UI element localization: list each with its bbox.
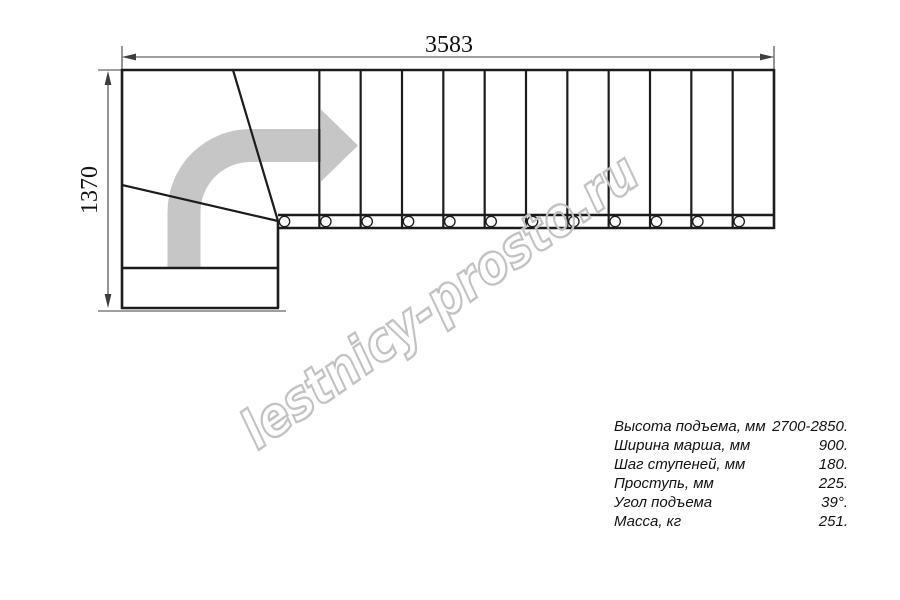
spec-value: 39°. — [821, 493, 848, 512]
spec-label: Шаг ступеней, мм — [614, 455, 745, 474]
left-dim-arrow-top — [105, 71, 112, 85]
direction-arrow-shaft — [184, 146, 322, 269]
spec-row-mass: Масса, кг 251. — [614, 512, 848, 531]
left-dimension-label: 1370 — [77, 166, 103, 214]
specs-table: Высота подъема, мм 2700-2850. Ширина мар… — [614, 417, 848, 531]
spec-value: 180. — [819, 455, 848, 474]
spec-value: 251. — [819, 512, 848, 531]
spec-label: Масса, кг — [614, 512, 681, 531]
tread-mount-circle — [734, 216, 744, 226]
left-dim-arrow-bottom — [105, 294, 112, 308]
tread-mount-circle — [362, 216, 372, 226]
spec-row-step-rise: Шаг ступеней, мм 180. — [614, 455, 848, 474]
tread-mount-circle — [445, 216, 455, 226]
top-dim-arrow-right — [760, 54, 774, 61]
tread-mount-circle — [693, 216, 703, 226]
top-dimension: 3583 — [122, 32, 774, 69]
tread-mount-circle — [651, 216, 661, 226]
spec-row-flight-width: Ширина марша, мм 900. — [614, 436, 848, 455]
direction-arrow-icon — [184, 110, 358, 269]
spec-row-angle: Угол подъема 39°. — [614, 493, 848, 512]
spec-row-height: Высота подъема, мм 2700-2850. — [614, 417, 848, 436]
spec-label: Высота подъема, мм — [614, 417, 766, 436]
spec-label: Угол подъема — [614, 493, 712, 512]
spec-label: Проступь, мм — [614, 474, 714, 493]
spec-value: 2700-2850. — [772, 417, 848, 436]
tread-mount-circle — [403, 216, 413, 226]
top-dim-arrow-left — [122, 54, 136, 61]
tread-mount-circle — [321, 216, 331, 226]
spec-label: Ширина марша, мм — [614, 436, 750, 455]
top-dimension-label: 3583 — [425, 32, 473, 58]
spec-value: 900. — [819, 436, 848, 455]
direction-arrow-head — [321, 110, 358, 182]
watermark-text: lestnicy-prosto.ru — [229, 140, 650, 461]
spec-row-tread: Проступь, мм 225. — [614, 474, 848, 493]
drawing-canvas: 3583 1370 lestnicy-prosto.ru Высота подъ… — [0, 0, 900, 600]
tread-mount-circle — [279, 216, 289, 226]
spec-value: 225. — [819, 474, 848, 493]
